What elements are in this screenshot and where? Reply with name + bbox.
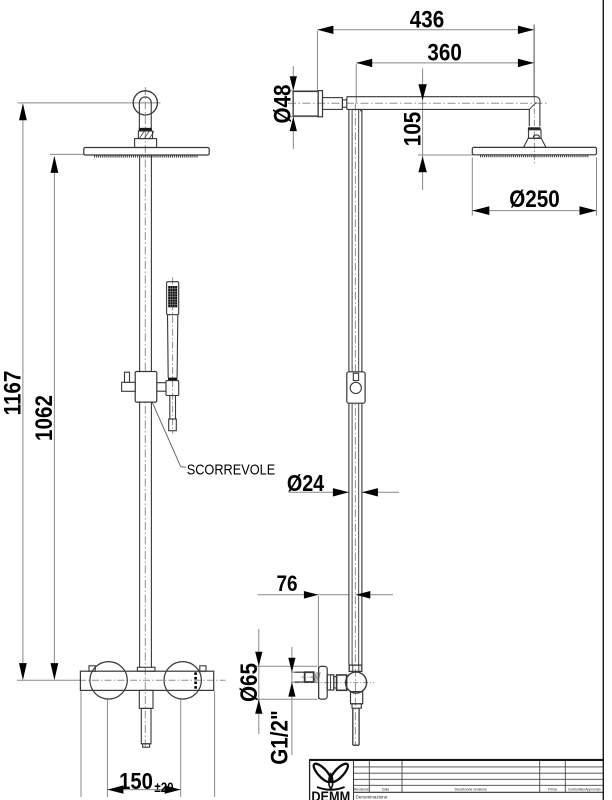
svg-text:360: 360 [427, 39, 461, 66]
svg-text:76: 76 [276, 572, 297, 597]
svg-text:105: 105 [399, 112, 426, 146]
svg-text:Ø65: Ø65 [235, 663, 262, 702]
svg-text:Ø24: Ø24 [287, 470, 324, 496]
svg-text:Denominazione: Denominazione [356, 795, 388, 800]
svg-text:Ø48: Ø48 [269, 84, 296, 123]
svg-text:Controllato/Approvato: Controllato/Approvato [568, 788, 601, 792]
svg-text:DEMM: DEMM [311, 789, 350, 800]
svg-text:Revisione: Revisione [354, 788, 369, 792]
svg-text:436: 436 [410, 6, 444, 33]
svg-text:150: 150 [119, 768, 153, 795]
svg-text:±20: ±20 [154, 780, 173, 795]
svg-text:1167: 1167 [0, 371, 26, 416]
svg-text:1062: 1062 [31, 395, 58, 441]
svg-text:G1/2": G1/2" [266, 710, 293, 765]
svg-text:SCORREVOLE: SCORREVOLE [187, 460, 276, 477]
svg-text:Firma: Firma [548, 788, 557, 792]
svg-text:Ø250: Ø250 [509, 186, 559, 213]
svg-text:Descrizione revisione: Descrizione revisione [455, 788, 487, 792]
svg-text:Data: Data [382, 788, 389, 792]
